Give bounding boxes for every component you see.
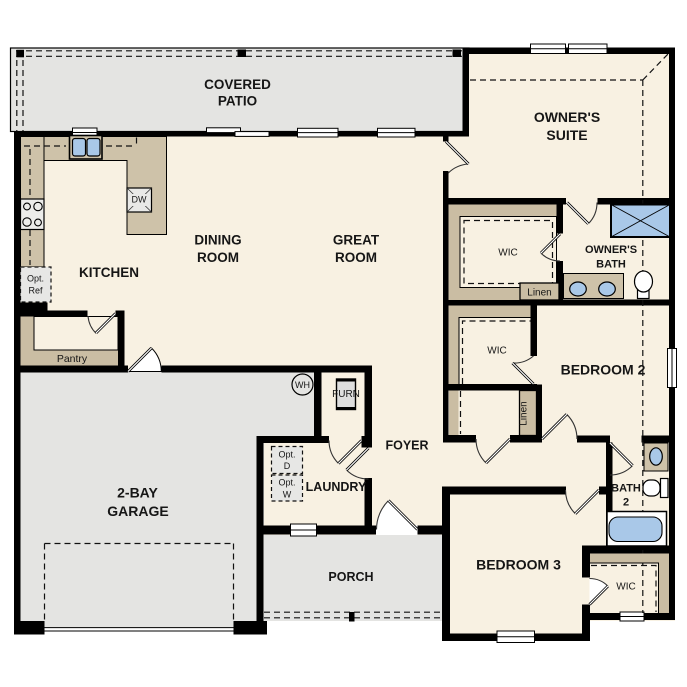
svg-text:GREAT: GREAT: [333, 233, 380, 248]
svg-text:WIC: WIC: [498, 248, 517, 259]
svg-text:OWNER'S: OWNER'S: [585, 244, 637, 256]
svg-text:Opt.: Opt.: [278, 450, 295, 460]
svg-text:LAUNDRY: LAUNDRY: [306, 480, 367, 494]
svg-text:2-BAY: 2-BAY: [117, 485, 158, 501]
svg-text:Pantry: Pantry: [57, 353, 88, 365]
svg-text:FOYER: FOYER: [385, 439, 428, 453]
svg-text:GARAGE: GARAGE: [107, 503, 168, 519]
svg-text:BATH: BATH: [611, 483, 641, 495]
svg-text:D: D: [284, 461, 291, 471]
svg-text:SUITE: SUITE: [546, 127, 587, 143]
svg-text:BATH: BATH: [596, 259, 626, 271]
svg-text:Linen: Linen: [527, 288, 551, 299]
svg-text:WIC: WIC: [616, 582, 635, 593]
svg-text:PATIO: PATIO: [218, 94, 257, 109]
svg-text:Opt.: Opt.: [27, 274, 44, 284]
svg-text:COVERED: COVERED: [204, 77, 271, 92]
svg-text:ROOM: ROOM: [197, 250, 239, 265]
svg-text:W: W: [283, 490, 292, 500]
svg-text:WH: WH: [295, 380, 310, 390]
svg-text:BEDROOM 3: BEDROOM 3: [476, 557, 561, 573]
svg-text:2: 2: [623, 497, 629, 509]
svg-text:PORCH: PORCH: [328, 570, 373, 584]
svg-text:Opt.: Opt.: [278, 478, 295, 488]
svg-text:ROOM: ROOM: [335, 250, 377, 265]
svg-text:DINING: DINING: [194, 233, 241, 248]
svg-text:Linen: Linen: [519, 401, 530, 425]
svg-text:OWNER'S: OWNER'S: [534, 109, 600, 125]
svg-text:WIC: WIC: [487, 346, 506, 357]
svg-text:BEDROOM 2: BEDROOM 2: [561, 362, 646, 378]
svg-text:KITCHEN: KITCHEN: [79, 265, 139, 280]
svg-text:Ref: Ref: [28, 286, 43, 296]
svg-text:DW: DW: [132, 195, 147, 205]
svg-text:FURN: FURN: [332, 389, 360, 400]
